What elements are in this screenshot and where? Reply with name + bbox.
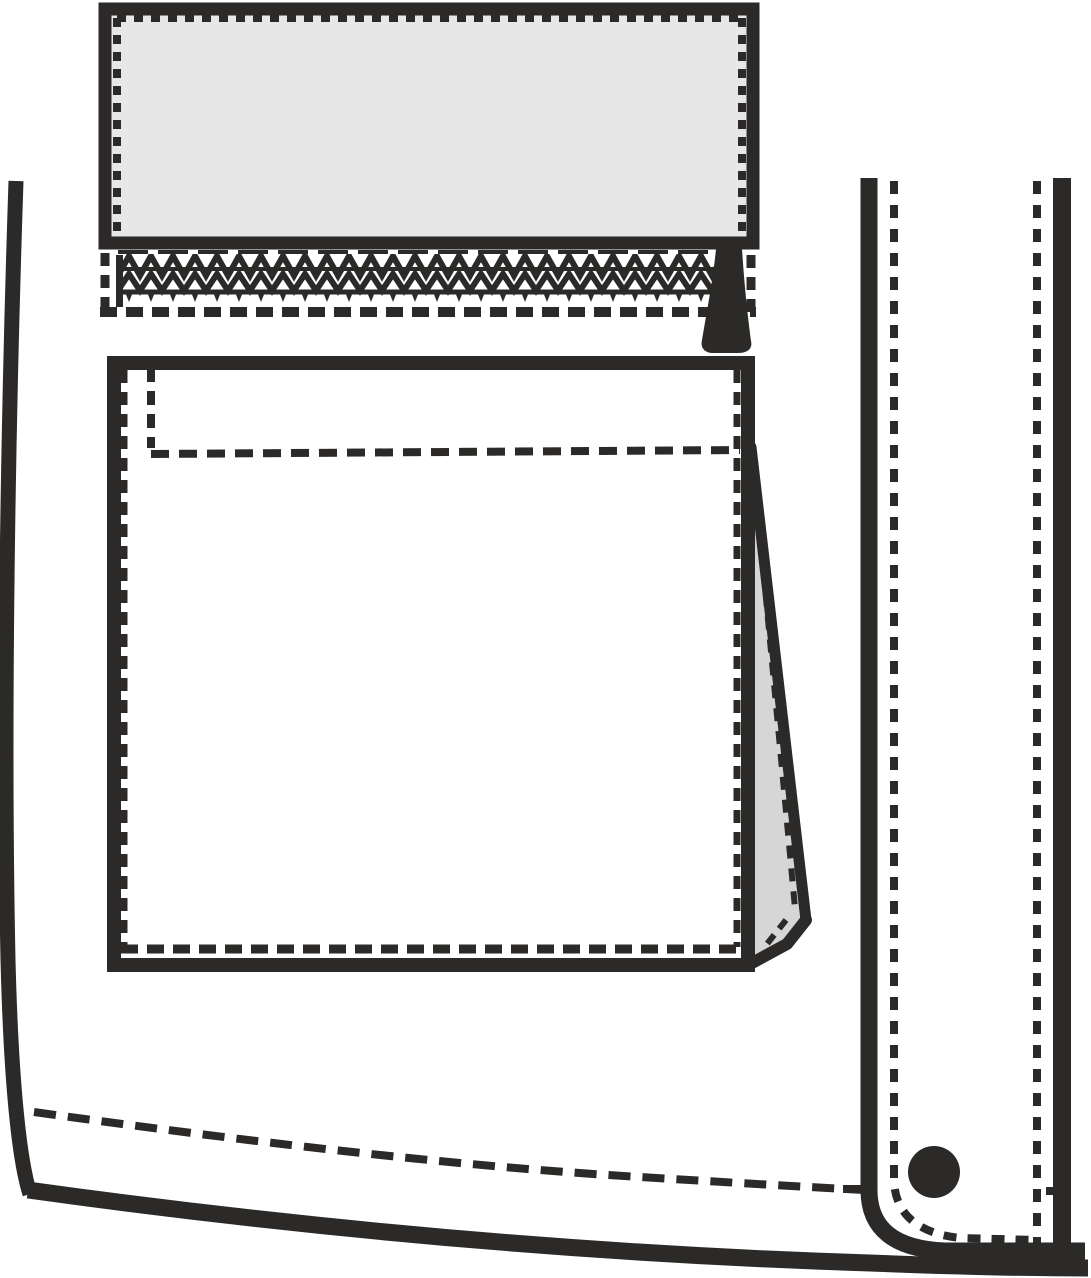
flap-panel — [105, 9, 753, 243]
front-placket — [843, 178, 1085, 1251]
placket-left-topstitch — [894, 181, 1037, 1240]
pocket-flap — [105, 9, 753, 243]
zipper-assembly — [100, 249, 756, 353]
sketch-canvas — [0, 0, 1091, 1278]
hem-topstitch — [34, 1112, 864, 1190]
snap-button — [908, 1146, 960, 1198]
zipper-teeth — [118, 254, 739, 304]
zipper-top-stop — [116, 255, 123, 307]
patch-pocket — [114, 363, 806, 965]
placket-left-edge — [869, 178, 1085, 1251]
garment-sketch — [0, 0, 1091, 1278]
side-seam — [6, 181, 30, 1194]
